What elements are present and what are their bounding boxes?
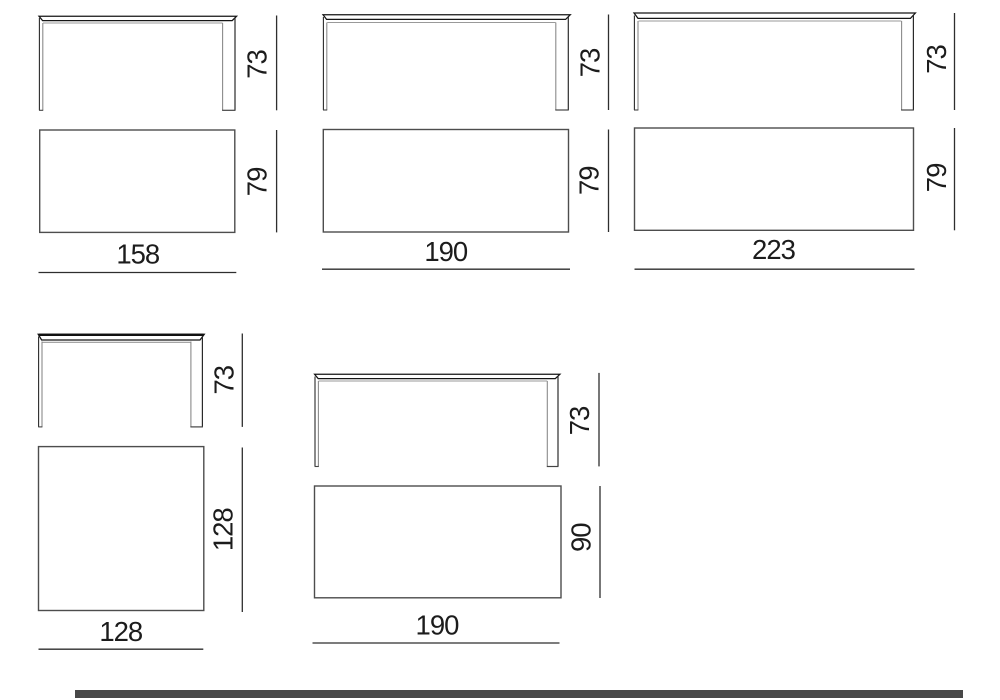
svg-text:158: 158: [116, 239, 160, 270]
svg-text:79: 79: [921, 164, 952, 193]
svg-text:73: 73: [564, 406, 595, 435]
svg-text:128: 128: [99, 616, 143, 647]
svg-text:190: 190: [424, 236, 468, 267]
svg-text:79: 79: [574, 166, 605, 195]
svg-text:73: 73: [921, 45, 952, 74]
svg-text:128: 128: [208, 508, 239, 552]
svg-text:190: 190: [416, 610, 460, 641]
svg-text:73: 73: [242, 50, 273, 79]
svg-text:90: 90: [566, 523, 597, 552]
svg-text:73: 73: [575, 48, 606, 77]
svg-text:79: 79: [242, 168, 273, 197]
svg-text:73: 73: [209, 365, 240, 394]
svg-text:223: 223: [752, 234, 796, 265]
